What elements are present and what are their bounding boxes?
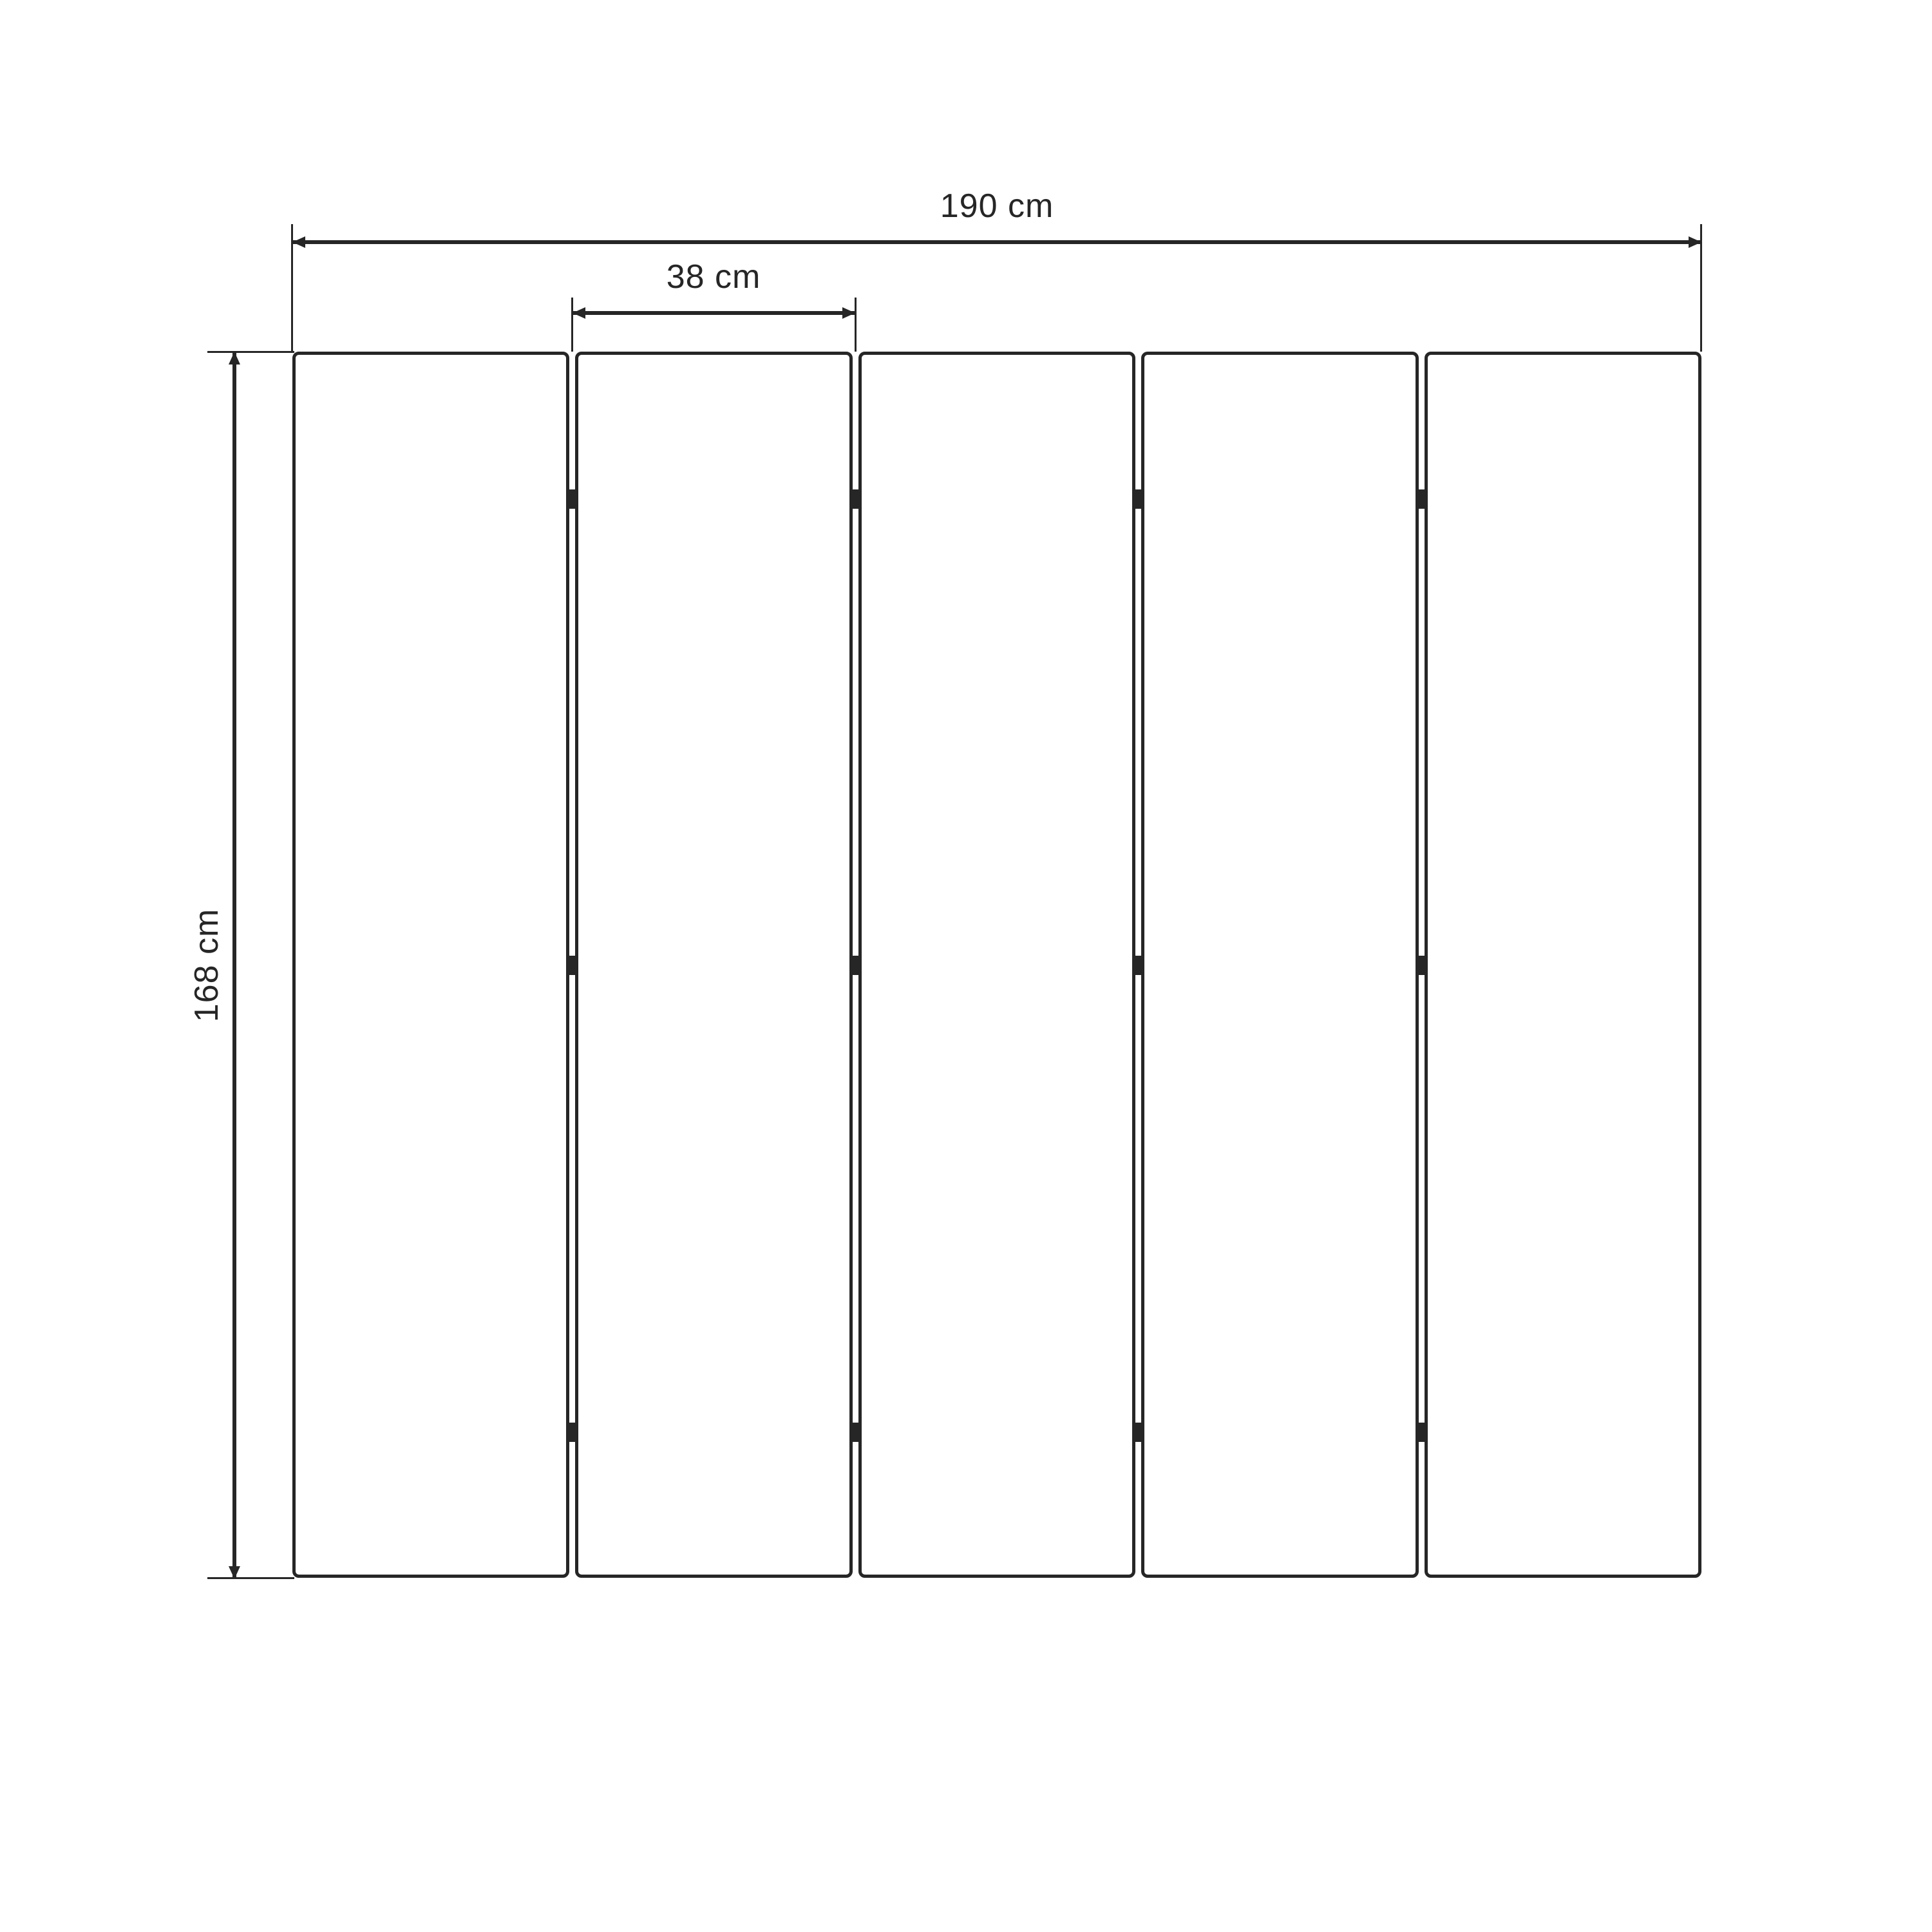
panel xyxy=(858,352,1135,1578)
total-width-label: 190 cm xyxy=(836,188,1158,224)
hinge xyxy=(850,1423,860,1442)
extension-line-height-bottom xyxy=(207,1577,294,1579)
dimension-line-total-width xyxy=(292,240,1701,244)
arrowhead-left-icon xyxy=(292,236,305,248)
arrowhead-left-icon xyxy=(573,307,585,319)
panel xyxy=(1425,352,1701,1578)
hinge xyxy=(567,489,578,509)
height-label: 168 cm xyxy=(189,804,225,1126)
panel-row xyxy=(292,352,1701,1578)
extension-line-panel-right xyxy=(855,298,857,352)
hinge xyxy=(1133,1423,1144,1442)
hinge xyxy=(1416,956,1426,975)
panel xyxy=(575,352,852,1578)
panel xyxy=(1141,352,1418,1578)
hinge xyxy=(1133,956,1144,975)
arrowhead-up-icon xyxy=(229,352,240,365)
panel xyxy=(292,352,569,1578)
panel-width-label: 38 cm xyxy=(553,259,875,295)
arrowhead-right-icon xyxy=(842,307,855,319)
extension-line-height-top xyxy=(207,351,294,353)
dimension-drawing: 190 cm 38 cm 168 cm xyxy=(0,0,1932,1932)
hinge xyxy=(850,489,860,509)
arrowhead-right-icon xyxy=(1689,236,1701,248)
hinge xyxy=(1133,489,1144,509)
hinge xyxy=(567,956,578,975)
hinge xyxy=(1416,1423,1426,1442)
hinge xyxy=(1416,489,1426,509)
dimension-line-height xyxy=(232,352,236,1579)
hinge xyxy=(850,956,860,975)
dimension-line-panel-width xyxy=(573,311,855,315)
hinge xyxy=(567,1423,578,1442)
extension-line-panel-left xyxy=(571,298,573,352)
